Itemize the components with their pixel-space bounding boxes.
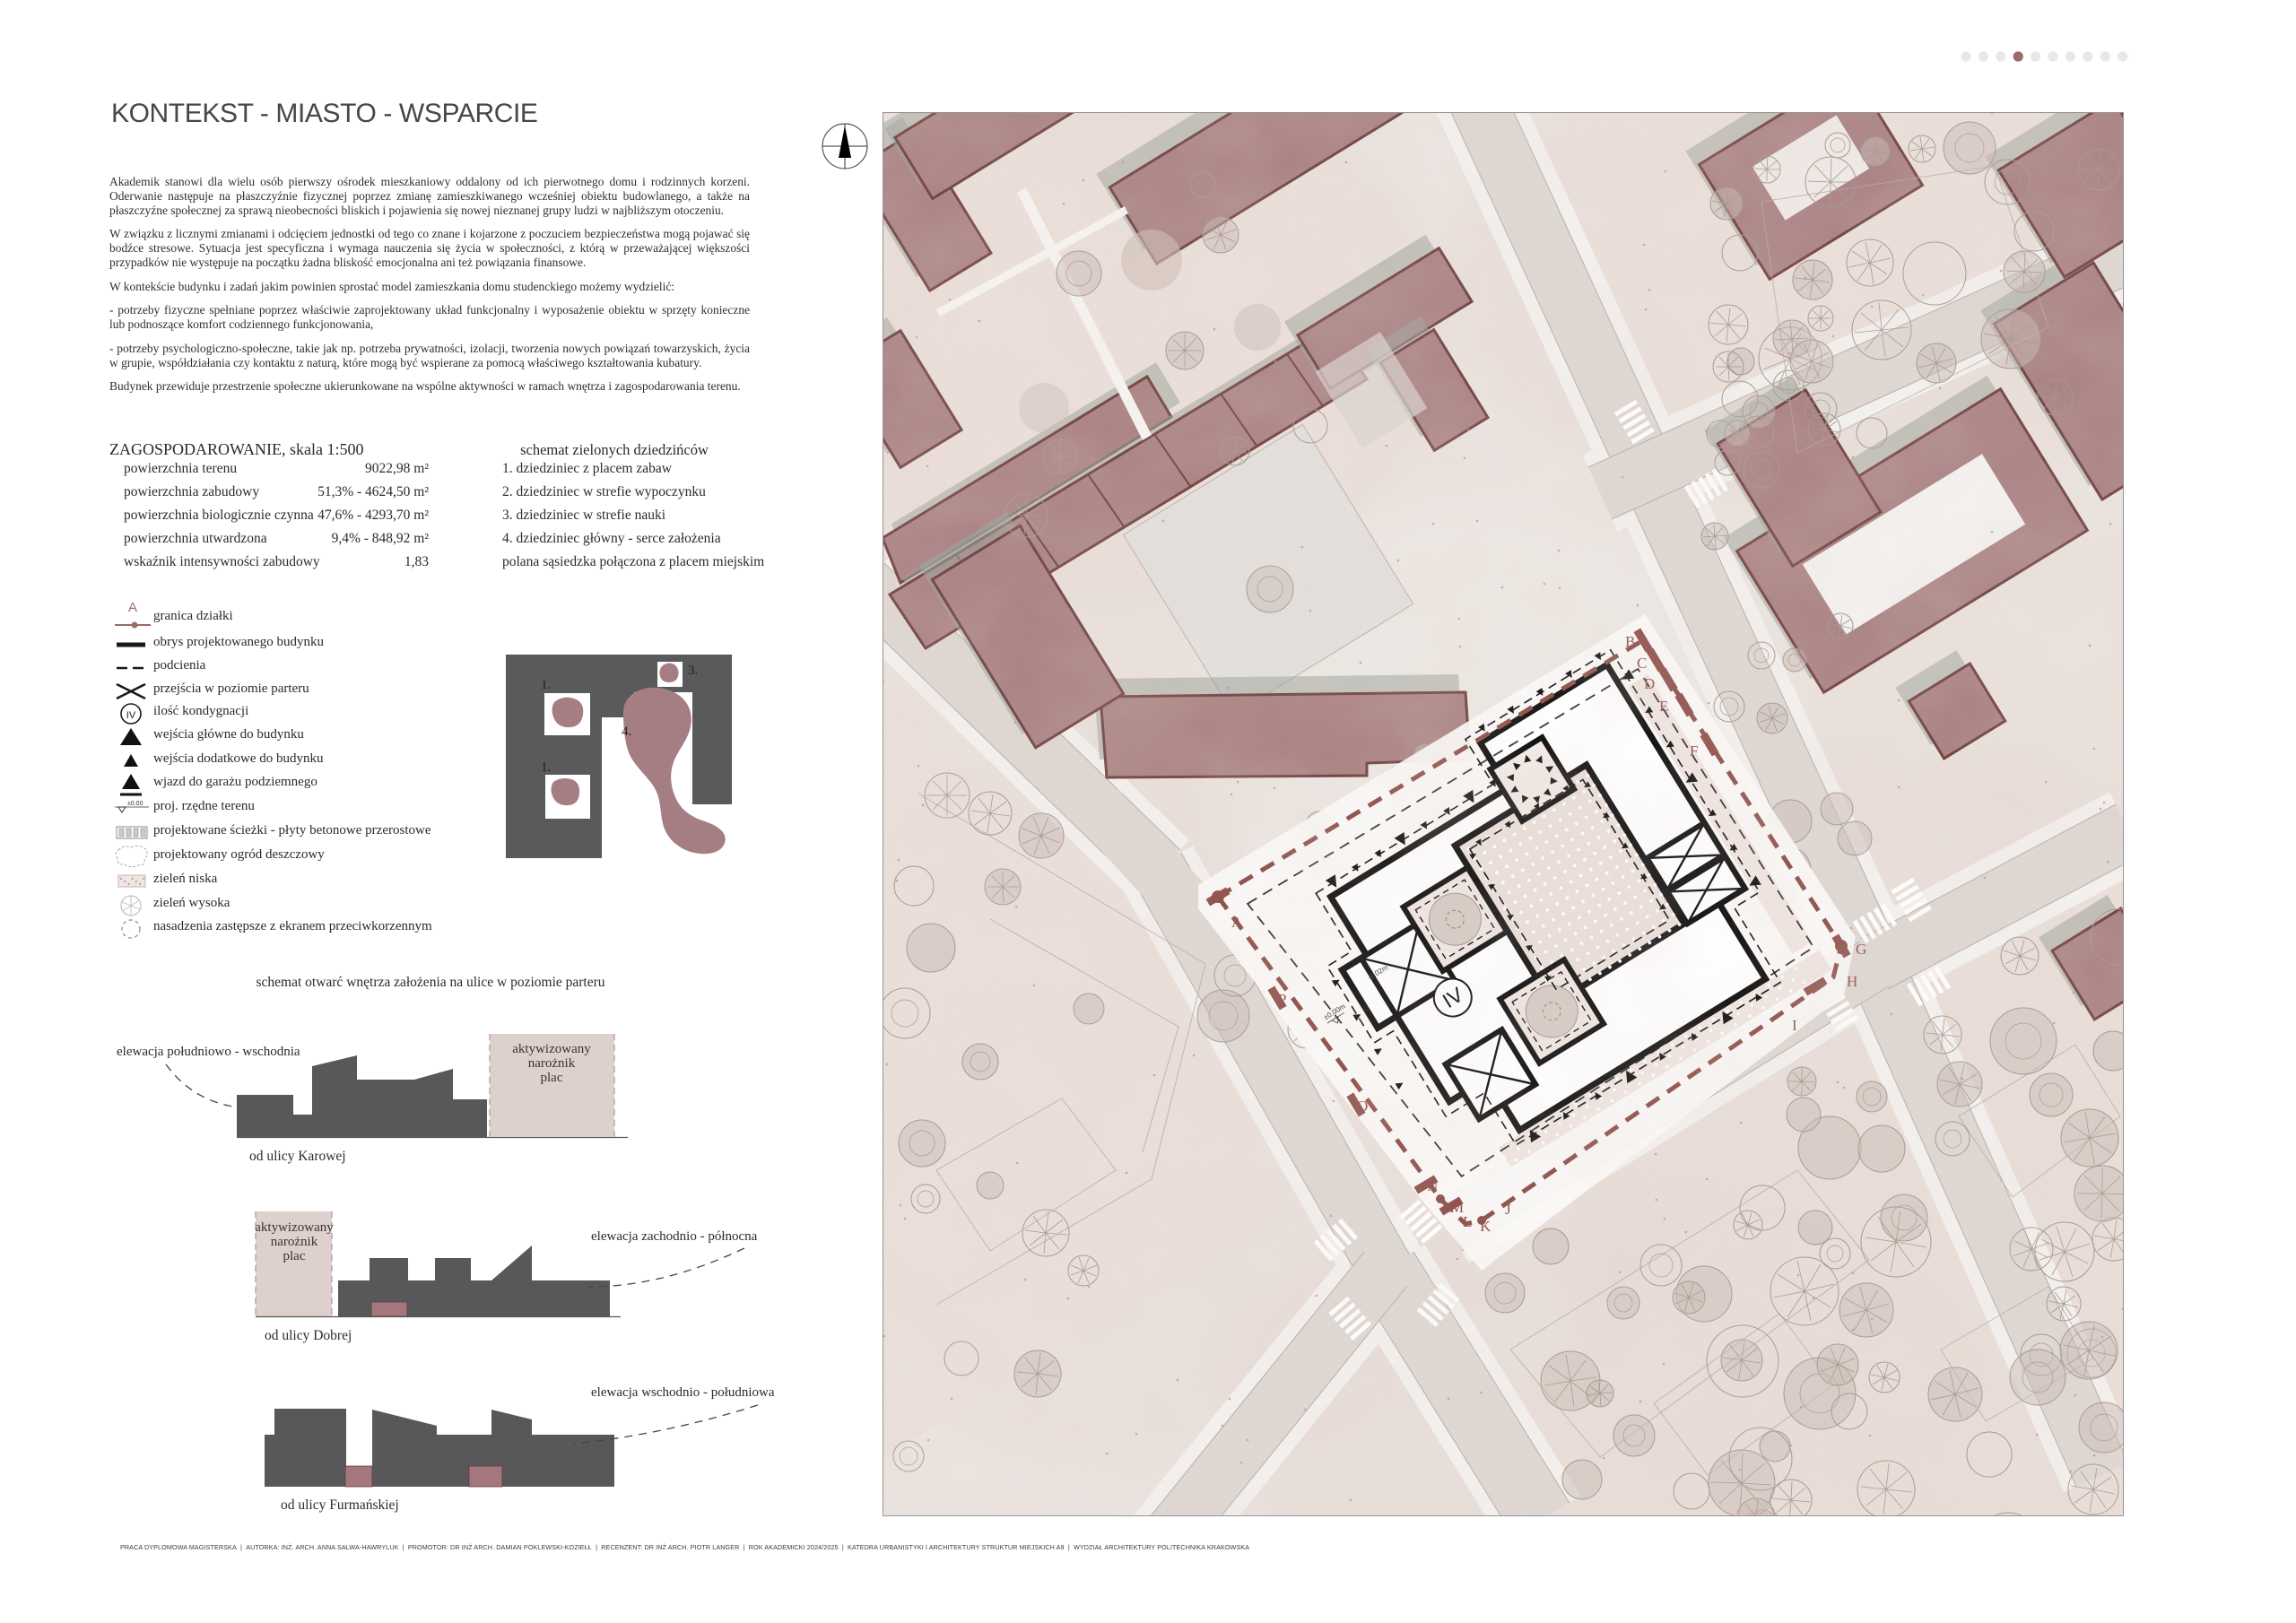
svg-text:aktywizowany: aktywizowany <box>255 1220 334 1235</box>
svg-text:aktywizowany: aktywizowany <box>512 1042 591 1056</box>
svg-text:4.: 4. <box>622 725 631 739</box>
svg-text:IV: IV <box>126 710 136 721</box>
svg-text:od ulicy Furmańskiej: od ulicy Furmańskiej <box>281 1497 399 1513</box>
svg-text:±0.00: ±0.00 <box>127 801 143 807</box>
svg-text:1.: 1. <box>541 678 551 692</box>
svg-text:plac: plac <box>541 1071 563 1085</box>
svg-text:elewacja wschodnio - południow: elewacja wschodnio - południowa <box>591 1385 775 1400</box>
svg-text:narożnik: narożnik <box>271 1235 318 1249</box>
svg-text:narożnik: narożnik <box>528 1056 576 1071</box>
svg-text:plac: plac <box>283 1249 306 1263</box>
svg-text:A: A <box>128 600 137 615</box>
svg-text:3.: 3. <box>688 664 698 678</box>
svg-text:elewacja południowo - wschodni: elewacja południowo - wschodnia <box>117 1045 300 1059</box>
svg-text:elewacja zachodnio - północna: elewacja zachodnio - północna <box>591 1229 758 1244</box>
svg-text:od ulicy Karowej: od ulicy Karowej <box>249 1149 346 1164</box>
svg-text:1.: 1. <box>541 760 551 775</box>
svg-text:od ulicy Dobrej: od ulicy Dobrej <box>265 1328 352 1343</box>
